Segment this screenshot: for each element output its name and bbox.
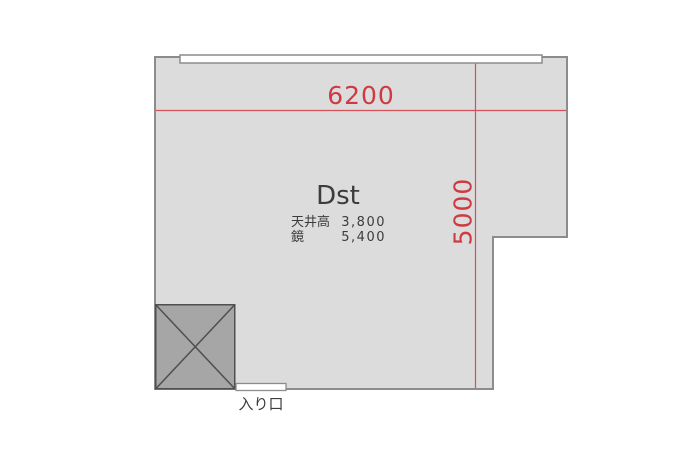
mirror-label: 鏡 [291, 231, 304, 246]
floor-plan: 6200 5000 Dst 天井高 3,800 鏡 5,400 入り口 [0, 0, 700, 465]
room-specs: 天井高 3,800 鏡 5,400 [291, 216, 386, 245]
mirror-value: 5,400 [341, 231, 386, 246]
pillar-shape [156, 305, 235, 389]
mirror-strip [180, 55, 542, 63]
spec-row-ceiling-height: 天井高 3,800 [291, 216, 386, 231]
ceiling-height-label: 天井高 [291, 216, 330, 231]
spec-row-mirror: 鏡 5,400 [291, 231, 386, 246]
room-name-label: Dst [298, 184, 378, 208]
entrance-label: 入り口 [221, 396, 301, 413]
ceiling-height-value: 3,800 [341, 216, 386, 231]
height-dimension-label: 5000 [451, 162, 476, 262]
entrance-door [236, 384, 286, 391]
width-dimension-label: 6200 [311, 84, 411, 108]
